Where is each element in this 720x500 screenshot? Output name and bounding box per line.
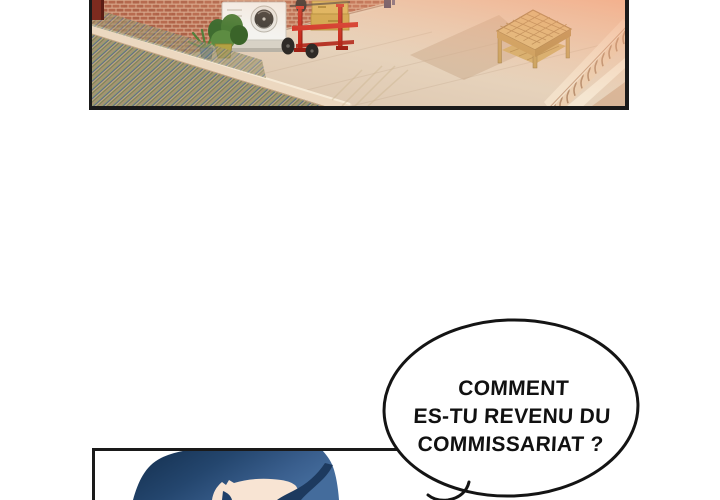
comic-page: COMMENT ES-TU REVENU DU COMMISSARIAT ? xyxy=(0,0,720,500)
red-pillar xyxy=(92,0,104,20)
rooftop-scene xyxy=(92,0,625,106)
bubble-line-2: ES-TU REVENU DU xyxy=(394,403,629,431)
bubble-line-1: COMMENT xyxy=(396,375,631,403)
bubble-line-3: COMMISSARIAT ? xyxy=(393,431,628,459)
rooftop-panel xyxy=(89,0,629,110)
bubble-text: COMMENT ES-TU REVENU DU COMMISSARIAT ? xyxy=(393,375,631,459)
